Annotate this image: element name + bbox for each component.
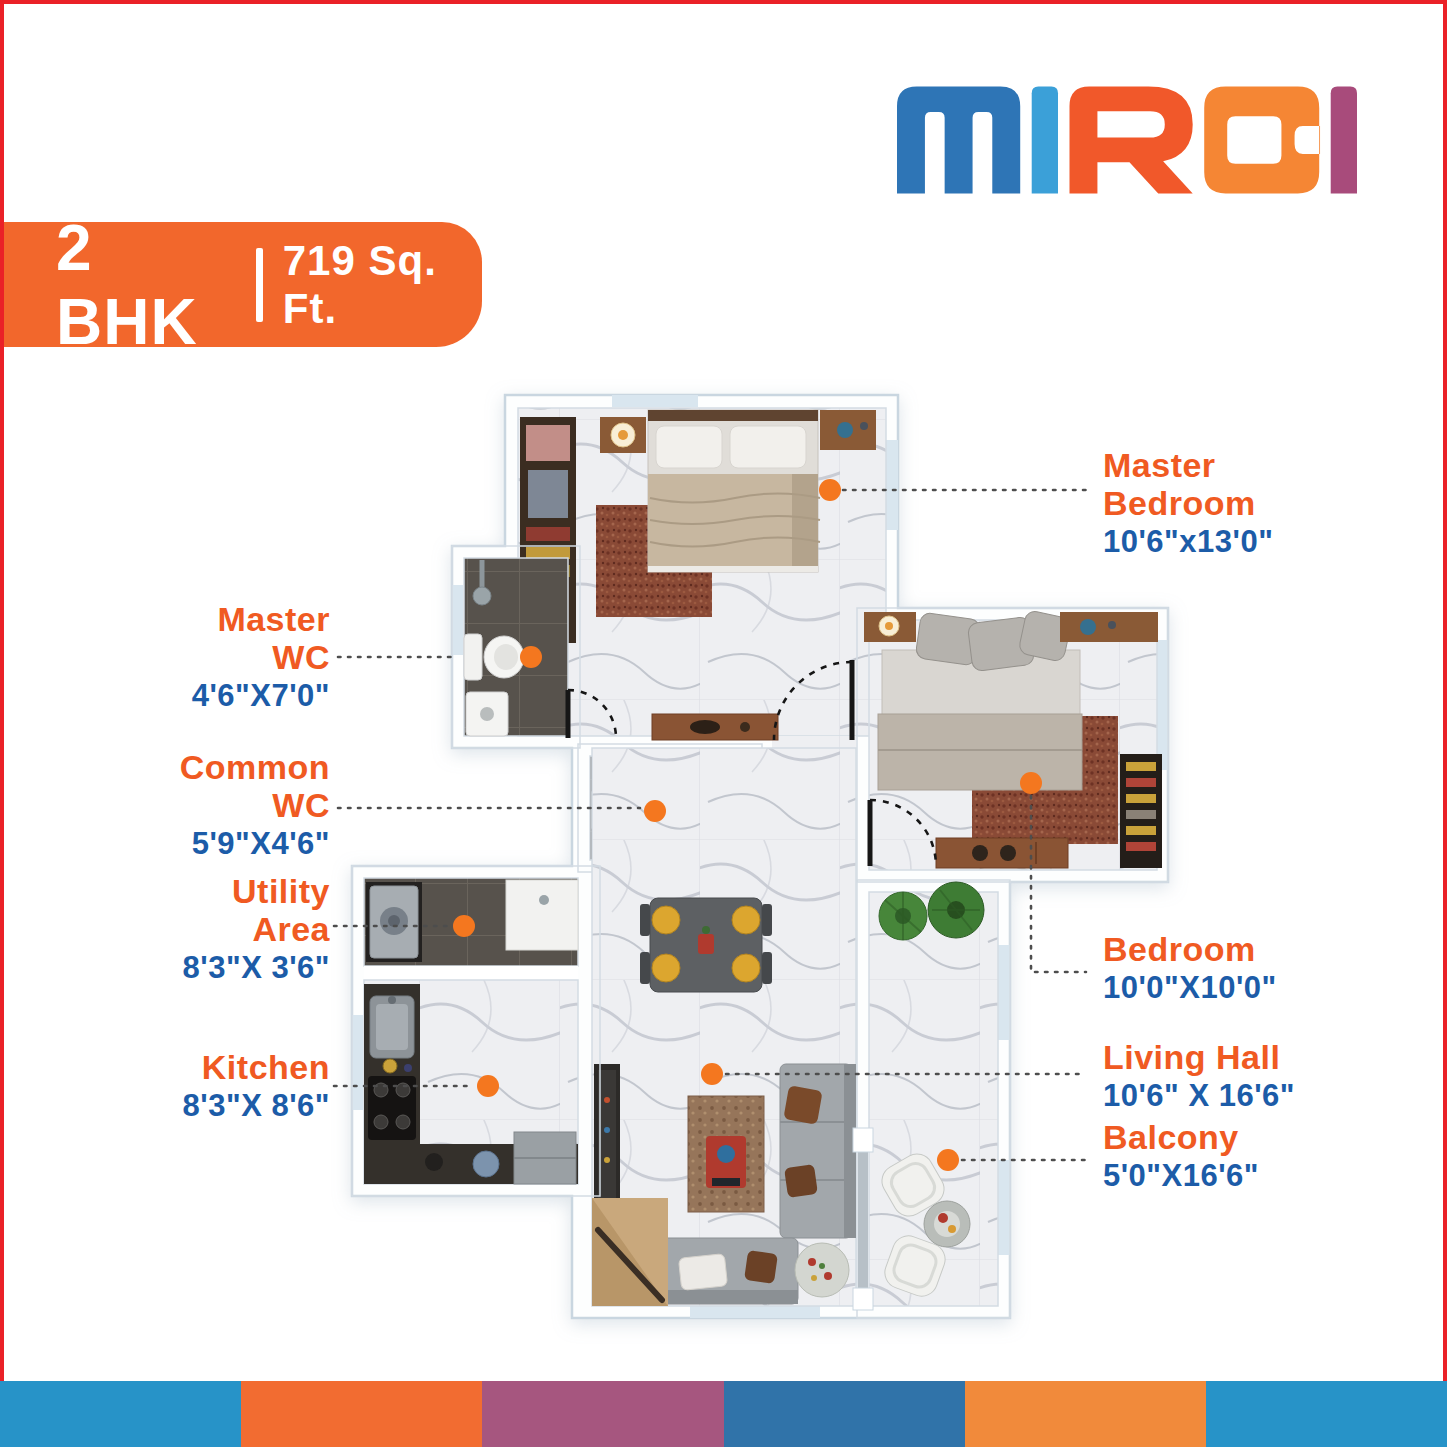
marker-bedroom [1020, 772, 1042, 794]
banner-divider [256, 248, 263, 322]
marker-master-bedroom [819, 479, 841, 501]
dresser-icon [936, 838, 1068, 868]
double-bed-icon [648, 410, 820, 572]
room-name: Bedroom [1103, 484, 1273, 522]
marker-utility-area [453, 915, 475, 937]
room-name: Living Hall [1103, 1038, 1295, 1076]
room-master-bedroom [518, 408, 886, 750]
room-label-utility-area: UtilityArea8'3"X 3'6" [183, 872, 330, 986]
room-dimensions: 8'3"X 3'6" [183, 950, 330, 986]
utility-counter-icon [506, 880, 578, 950]
room-kitchen [352, 866, 600, 1196]
unit-area: 719 Sq. Ft. [283, 237, 482, 333]
logo-letter-i-2 [1032, 87, 1058, 194]
round-rug-icon [795, 1243, 849, 1297]
footer-strip-segment-1 [0, 1381, 241, 1447]
nightstand-icon [820, 410, 876, 450]
marker-living-hall [701, 1063, 723, 1085]
room-label-master-wc: MasterWC4'6"X7'0" [192, 600, 330, 714]
room-dimensions: 5'9"X4'6" [180, 826, 330, 862]
footer-color-strip [0, 1381, 1447, 1447]
brochure-page: 2 BHK 719 Sq. Ft. MasterBedroom10'6"x13'… [0, 0, 1447, 1447]
room-name: Master [1103, 446, 1273, 484]
footer-strip-segment-3 [482, 1381, 723, 1447]
marker-common-wc [644, 800, 666, 822]
wardrobe-icon [1120, 754, 1162, 868]
room-living-hall [592, 748, 856, 1306]
console-table-icon [652, 714, 778, 740]
balcony-table-icon [924, 1201, 970, 1247]
room-name: Kitchen [183, 1048, 330, 1086]
room-dimensions: 5'0"X16'6" [1103, 1158, 1259, 1194]
logo-letter-i-5 [1331, 87, 1357, 194]
room-name: Bedroom [1103, 930, 1277, 968]
footer-strip-segment-4 [724, 1381, 965, 1447]
logo-letter-a-4 [1204, 87, 1320, 194]
rug-icon [688, 1096, 764, 1212]
logo-letter-m-1 [897, 87, 1020, 194]
room-name: Master [192, 600, 330, 638]
footer-strip-segment-6 [1206, 1381, 1447, 1447]
marker-balcony [937, 1149, 959, 1171]
room-dimensions: 8'3"X 8'6" [183, 1088, 330, 1124]
toilet-icon [464, 634, 524, 680]
room-dimensions: 4'6"X7'0" [192, 678, 330, 714]
room-bedroom [857, 608, 1168, 882]
marker-master-wc [520, 646, 542, 668]
room-name: WC [180, 786, 330, 824]
room-balcony [853, 880, 1010, 1318]
room-label-living-hall: Living Hall10'6" X 16'6" [1103, 1038, 1295, 1114]
room-name: Balcony [1103, 1118, 1259, 1156]
footer-strip-segment-2 [241, 1381, 482, 1447]
entrance-area [592, 1198, 668, 1306]
logo-letter-R-3 [1070, 87, 1193, 194]
footer-strip-segment-5 [965, 1381, 1206, 1447]
room-name: WC [192, 638, 330, 676]
dining-table-icon [640, 898, 772, 992]
room-label-master-bedroom: MasterBedroom10'6"x13'0" [1103, 446, 1273, 560]
room-label-common-wc: CommonWC5'9"X4'6" [180, 748, 330, 862]
unit-type: 2 BHK [56, 211, 234, 359]
marker-kitchen [477, 1075, 499, 1097]
nightstand-icon [600, 417, 646, 453]
nightstand-icon [864, 612, 916, 642]
room-label-kitchen: Kitchen8'3"X 8'6" [183, 1048, 330, 1124]
unit-banner: 2 BHK 719 Sq. Ft. [4, 222, 482, 347]
round-sink-icon [473, 1151, 499, 1177]
room-name: Common [180, 748, 330, 786]
room-dimensions: 10'0"X10'0" [1103, 970, 1277, 1006]
logo-letters [897, 87, 1357, 194]
room-name: Area [183, 910, 330, 948]
kitchen-sink-icon [370, 996, 414, 1058]
washing-machine-icon [366, 882, 422, 962]
dresser-icon [1060, 612, 1158, 642]
room-dimensions: 10'6"x13'0" [1103, 524, 1273, 560]
room-label-balcony: Balcony5'0"X16'6" [1103, 1118, 1259, 1194]
washbasin-icon [466, 692, 508, 736]
room-name: Utility [183, 872, 330, 910]
brand-logo [897, 76, 1357, 204]
room-label-bedroom: Bedroom10'0"X10'0" [1103, 930, 1277, 1006]
counter-appliance-icon [514, 1132, 576, 1184]
room-dimensions: 10'6" X 16'6" [1103, 1078, 1295, 1114]
